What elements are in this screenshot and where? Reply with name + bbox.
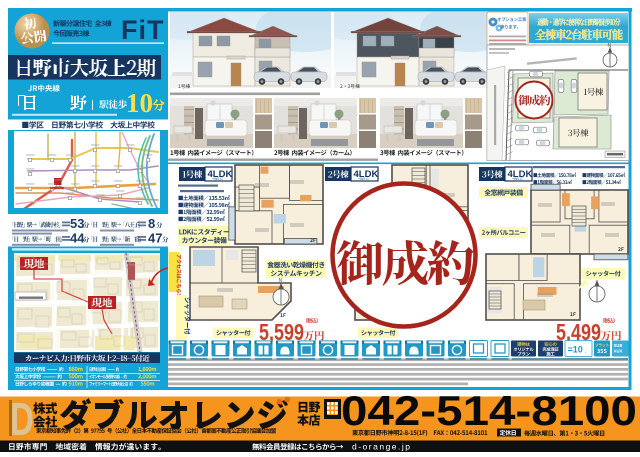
svg-text:D: D: [10, 393, 34, 445]
svg-text:N: N: [608, 43, 612, 49]
svg-text:042-514-8100: 042-514-8100: [341, 387, 637, 434]
svg-text:FiT: FiT: [121, 15, 165, 45]
svg-text:=10: =10: [568, 345, 583, 355]
svg-text:+W.I.C: +W.I.C: [512, 177, 523, 181]
svg-text:SUB: SUB: [614, 343, 623, 348]
svg-text:53: 53: [70, 216, 84, 231]
svg-text:+W.I.C: +W.I.C: [358, 177, 369, 181]
svg-text:N: N: [279, 278, 283, 284]
svg-text:8: 8: [148, 216, 155, 231]
svg-text:AUX: AUX: [614, 349, 623, 354]
svg-text:10: 10: [126, 88, 153, 118]
svg-text:d-orange.jp: d-orange.jp: [352, 442, 412, 452]
svg-text:47: 47: [148, 231, 162, 246]
svg-text:+W.I.C: +W.I.C: [212, 177, 223, 181]
svg-text:44: 44: [70, 231, 85, 246]
